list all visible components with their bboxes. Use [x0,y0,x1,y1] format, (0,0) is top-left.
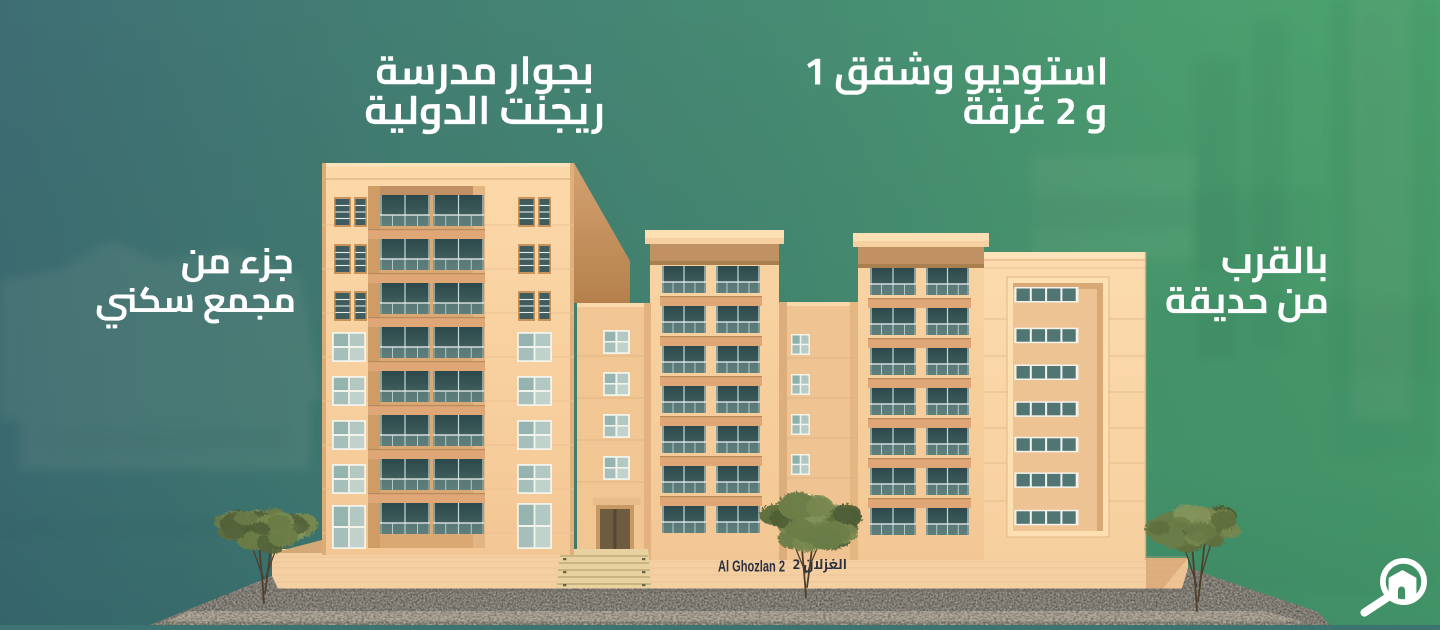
svg-text:Al Ghozlan 2: Al Ghozlan 2 [718,559,785,576]
